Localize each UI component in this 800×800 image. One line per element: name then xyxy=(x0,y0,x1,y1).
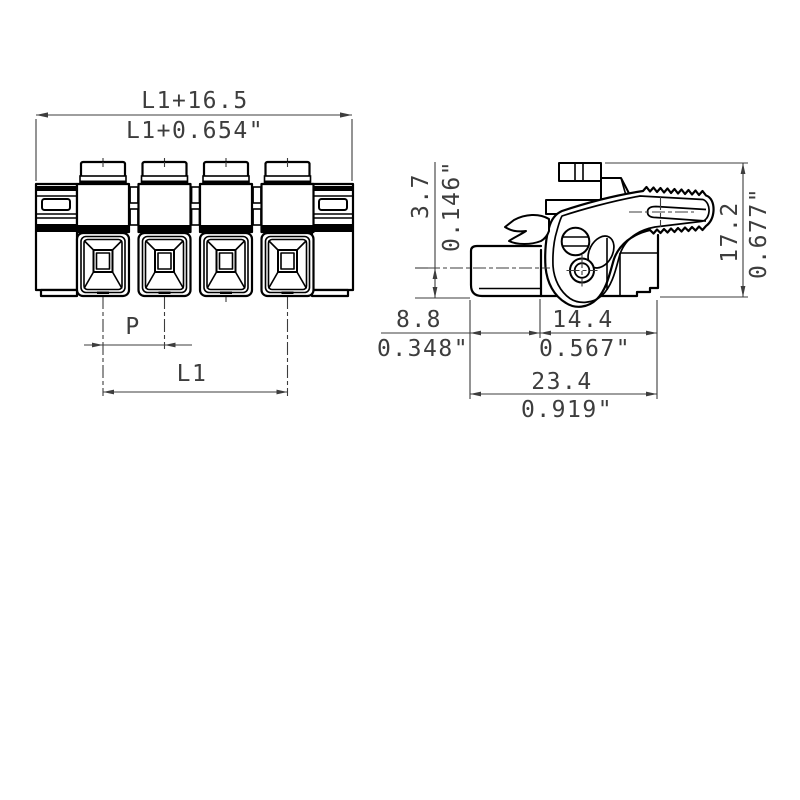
dim-total-width-inch-label: L1+0.654" xyxy=(126,118,264,144)
pole-2 xyxy=(139,162,191,296)
front-view: L1+16.5 L1+0.654" P L1 xyxy=(36,88,353,396)
right-flange xyxy=(312,184,353,296)
dim-axis-height-mm-label: 3.7 xyxy=(408,173,434,219)
side-view: 3.7 0.146" 17.2 0.677" 8.8 0.348" xyxy=(377,160,772,423)
dim-rear-depth-mm-label: 14.4 xyxy=(552,307,613,333)
dim-pitch-label: P xyxy=(125,314,140,340)
dim-overall-height-inch-label: 0.677" xyxy=(746,187,772,279)
left-flange xyxy=(36,184,77,296)
dim-pitch: P xyxy=(84,314,192,347)
dim-overall-height-mm-label: 17.2 xyxy=(717,201,743,262)
wire-entry-cylinder xyxy=(427,246,550,296)
dim-depths: 8.8 0.348" 14.4 0.567" 23.4 0.919" xyxy=(377,299,657,423)
dim-rear-depth-inch-label: 0.567" xyxy=(539,336,631,362)
pole-1 xyxy=(77,162,129,296)
connector-dimension-drawing: L1+16.5 L1+0.654" P L1 xyxy=(0,0,800,800)
dim-front-depth-mm-label: 8.8 xyxy=(396,307,442,333)
dim-total-depth-mm-label: 23.4 xyxy=(531,369,592,395)
clamping-screw xyxy=(562,228,590,256)
dim-length-l1: L1 xyxy=(103,361,288,394)
dim-length-l1-label: L1 xyxy=(177,361,208,387)
dim-front-depth-inch-label: 0.348" xyxy=(377,336,469,362)
release-claw xyxy=(505,215,549,244)
dim-rear-depth: 14.4 0.567" xyxy=(539,307,657,362)
dim-total-width-mm-label: L1+16.5 xyxy=(141,88,248,114)
dim-total-depth-inch-label: 0.919" xyxy=(521,397,613,423)
dim-axis-height: 3.7 0.146" xyxy=(408,160,470,298)
dim-total-depth: 23.4 0.919" xyxy=(470,369,657,423)
technical-drawing-page: L1+16.5 L1+0.654" P L1 xyxy=(0,0,800,800)
pole-3 xyxy=(200,162,252,296)
dim-axis-height-inch-label: 0.146" xyxy=(439,160,465,252)
pole-4 xyxy=(262,162,314,296)
